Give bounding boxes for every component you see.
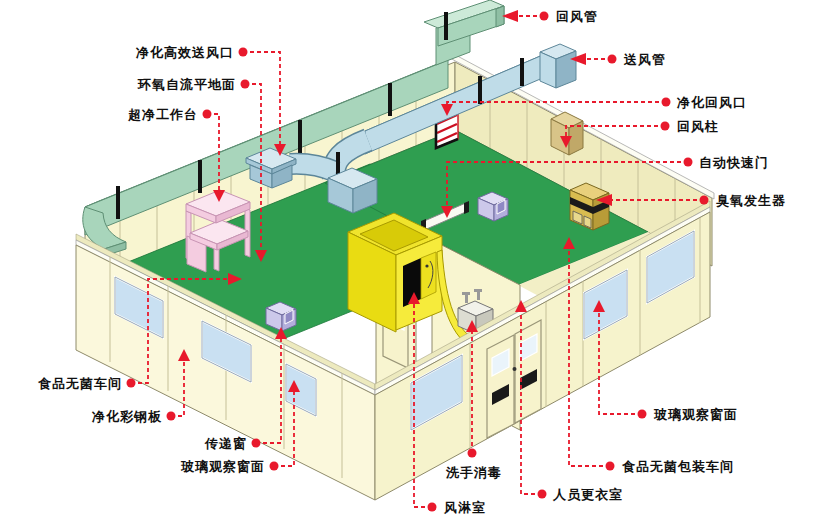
return-air-column [551, 112, 583, 155]
label-epoxy-self-leveling-floor: 环氧自流平地面 [138, 78, 236, 91]
label-glass-observation-window-left: 玻璃观察窗面 [181, 460, 265, 473]
label-automatic-rapid-door: 自动快速门 [699, 156, 769, 169]
label-ultra-clean-workbench: 超净工作台 [128, 108, 198, 121]
label-purifying-hepa-supply-outlet: 净化高效送风口 [136, 46, 234, 59]
label-air-shower-room: 风淋室 [444, 501, 486, 514]
label-transfer-window: 传递窗 [205, 437, 247, 450]
label-return-air-duct: 回风管 [556, 10, 598, 23]
door-handle [513, 367, 517, 371]
leader-return-air-duct [502, 10, 549, 22]
ozone-generator-unit [570, 183, 609, 230]
label-staff-changing-room: 人员更衣室 [553, 488, 623, 501]
label-purifying-color-steel-panel: 净化彩钢板 [92, 410, 162, 423]
label-supply-air-duct: 送风管 [624, 53, 666, 66]
label-return-air-column: 回风柱 [677, 120, 719, 133]
label-food-sterile-workshop: 食品无菌车间 [38, 377, 122, 390]
label-ozone-generator: 臭氧发生器 [716, 194, 786, 207]
label-purifying-return-air-outlet: 净化回风口 [677, 96, 747, 109]
leader-supply-air-duct [570, 53, 617, 65]
label-food-sterile-packaging-workshop: 食品无菌包装车间 [622, 460, 734, 473]
cleanroom-diagram: 回风管 送风管 净化回风口 回风柱 自动快速门 臭氧发生器 净化高效送风口 环氧… [0, 0, 821, 521]
cleanroom-isometric-drawing [0, 0, 821, 521]
label-glass-observation-window-right: 玻璃观察窗面 [654, 408, 738, 421]
label-hand-wash-disinfection: 洗手消毒 [446, 466, 502, 479]
return-duct-riser [424, 0, 504, 65]
